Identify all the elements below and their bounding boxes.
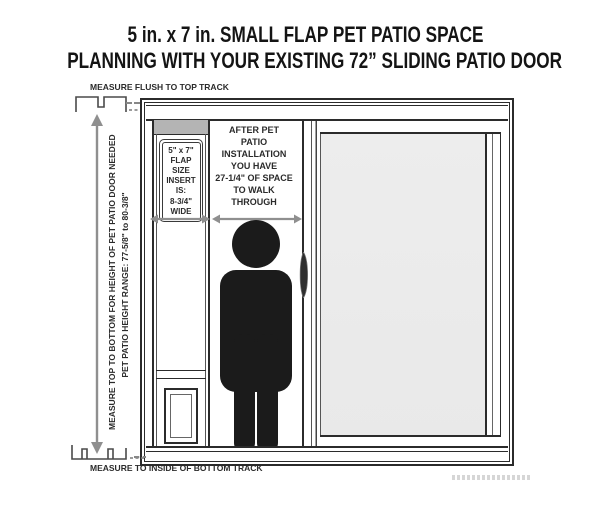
flap-panel: 5" x 7" FLAP SIZE INSERT IS: 8-3/4" WIDE (152, 120, 210, 448)
walkway-line: TO WALK (206, 184, 302, 196)
page-title: 5 in. x 7 in. SMALL FLAP PET PATIO SPACE… (0, 22, 611, 74)
bottom-track-profile-icon (70, 440, 146, 464)
bottom-track-measure-label: MEASURE TO INSIDE OF BOTTOM TRACK (90, 463, 263, 473)
flap-width-arrow (150, 215, 210, 224)
height-measure-arrow (89, 112, 105, 456)
flap-size-line: 5" x 7" (163, 146, 200, 156)
walkway-line: 27-1/4" OF SPACE (206, 172, 302, 184)
person-figure (210, 219, 302, 452)
door-frame: 5" x 7" FLAP SIZE INSERT IS: 8-3/4" WIDE… (140, 98, 514, 466)
sliding-door-top-rail (320, 120, 501, 134)
height-measure-label: MEASURE TOP TO BOTTOM FOR HEIGHT OF PET … (107, 140, 117, 430)
bottom-track-band (146, 446, 508, 460)
walkway-line: YOU HAVE (206, 160, 302, 172)
diagram-canvas: 5 in. x 7 in. SMALL FLAP PET PATIO SPACE… (0, 0, 611, 507)
top-track-band (146, 105, 508, 121)
top-track-profile-icon (74, 93, 146, 115)
flap-size-line: 8-3/4" (163, 197, 200, 207)
walkway-line: AFTER PET (206, 124, 302, 136)
flap-size-line: INSERT (163, 176, 200, 186)
pet-flap-insert (164, 388, 198, 444)
flap-size-textbox: 5" x 7" FLAP SIZE INSERT IS: 8-3/4" WIDE (159, 139, 203, 222)
walkway-line: PATIO (206, 136, 302, 148)
sliding-door-right-stile (485, 120, 501, 448)
watermark (452, 475, 532, 480)
walkway-line: THROUGH (206, 196, 302, 208)
walkway-instruction: AFTER PET PATIO INSTALLATION YOU HAVE 27… (206, 124, 302, 208)
walkway-line: INSTALLATION (206, 148, 302, 160)
pet-flap-opening (170, 394, 192, 438)
title-line-1: 5 in. x 7 in. SMALL FLAP PET PATIO SPACE (67, 22, 544, 48)
flap-size-line: SIZE (163, 166, 200, 176)
flap-panel-header (154, 120, 208, 135)
height-range-label: PET PATIO HEIGHT RANGE: 77-5/8" to 80-3/… (120, 160, 130, 410)
flap-size-line: FLAP (163, 156, 200, 166)
door-handle (297, 252, 310, 298)
flap-size-line: IS: (163, 186, 200, 196)
title-line-2: PLANNING WITH YOUR EXISTING 72” SLIDING … (67, 48, 544, 74)
top-track-measure-label: MEASURE FLUSH TO TOP TRACK (90, 82, 229, 92)
sliding-door-glass (320, 131, 488, 445)
panel-divider (156, 370, 206, 379)
